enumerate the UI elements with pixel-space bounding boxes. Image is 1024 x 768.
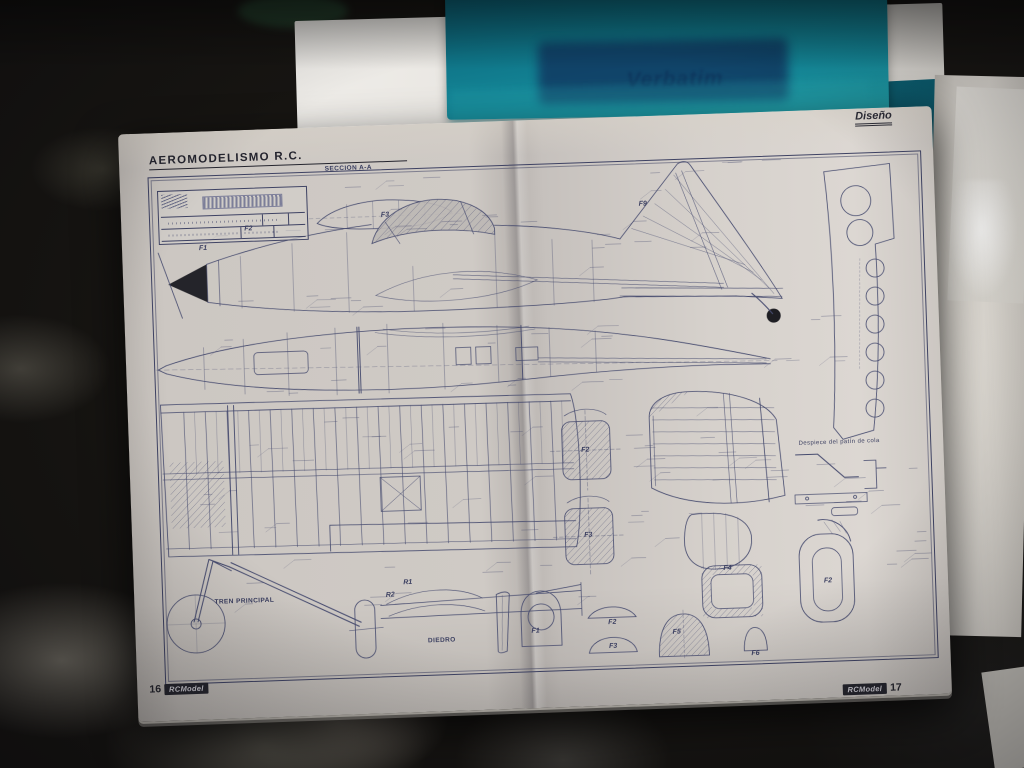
wing-plan-view xyxy=(160,391,582,561)
model-name-stylized xyxy=(202,194,282,210)
wheel-pant-detail xyxy=(798,519,856,623)
part-label: F4 xyxy=(723,565,731,572)
former-cross-sections xyxy=(549,408,627,575)
fuselage-template-strip xyxy=(824,163,902,439)
plastic-sheen xyxy=(946,180,1018,300)
part-label: F1 xyxy=(531,627,539,634)
main-gear-detail xyxy=(165,553,384,664)
page-number-left: 16 xyxy=(149,683,161,695)
part-label: F1 xyxy=(199,245,207,252)
part-label: R1 xyxy=(403,579,412,586)
part-label: R2 xyxy=(386,592,395,599)
title-block-table xyxy=(161,212,306,242)
part-label: F3 xyxy=(381,211,389,218)
magazine-logo-left: RCModel xyxy=(164,682,209,695)
part-label: F3 xyxy=(609,643,617,650)
page-footer-left: 16 RCModel xyxy=(149,682,209,696)
page-number-right: 17 xyxy=(890,681,902,693)
part-label: F6 xyxy=(751,650,759,657)
publisher-logo-mark xyxy=(161,194,187,209)
magazine-spread: AEROMODELISMO R.C. Diseño xyxy=(118,106,952,722)
part-label: F2 xyxy=(824,577,832,584)
small-former-templates xyxy=(496,564,768,666)
page-footer-right: RCModel 17 xyxy=(842,681,902,695)
part-label: F9 xyxy=(639,200,647,207)
magazine-logo-right: RCModel xyxy=(842,682,887,695)
part-label: F2 xyxy=(608,619,616,626)
part-label: F3 xyxy=(584,532,592,539)
plan-title-block xyxy=(157,186,309,245)
callout-diedro: DIEDRO xyxy=(428,636,456,644)
photo-scene: Verbatim AEROMODELISMO R.C. Diseño xyxy=(0,0,1024,768)
part-label: F2 xyxy=(244,225,252,232)
dihedral-diagram xyxy=(380,583,582,623)
fuselage-side-view xyxy=(156,158,784,344)
part-label: F2 xyxy=(581,447,589,454)
fuselage-top-view xyxy=(155,313,779,401)
part-label: F5 xyxy=(672,629,680,636)
tail-skid-detail xyxy=(794,452,888,517)
